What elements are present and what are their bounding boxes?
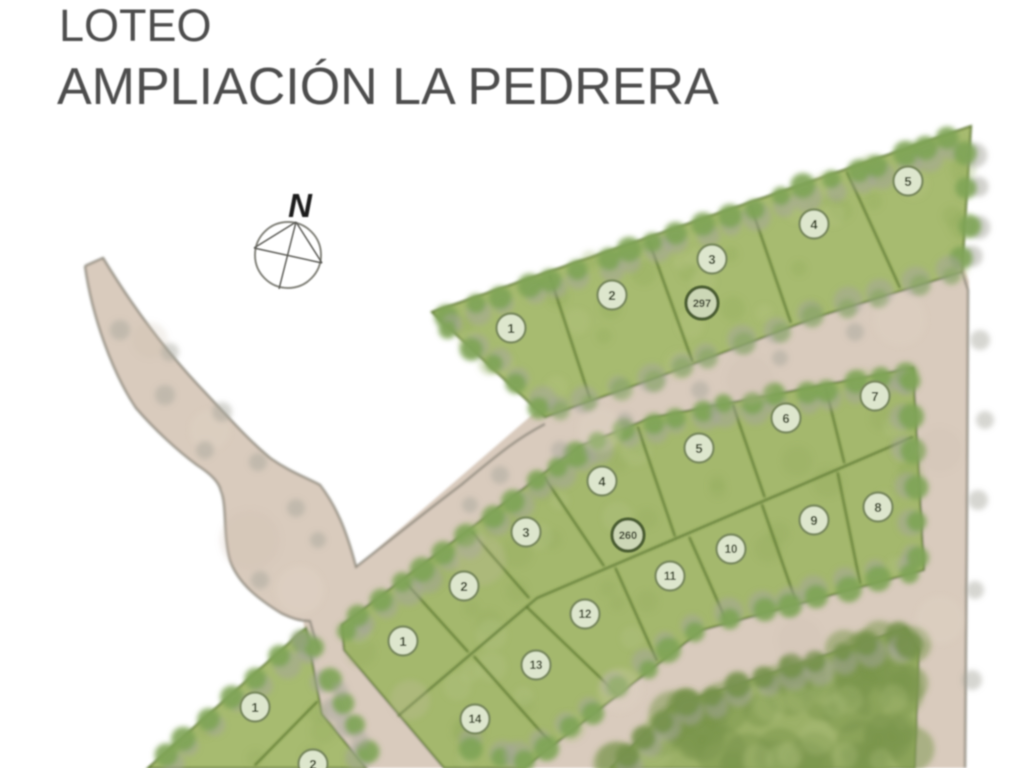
svg-text:3: 3 xyxy=(708,252,715,267)
svg-text:4: 4 xyxy=(810,217,818,232)
svg-text:2: 2 xyxy=(608,288,615,303)
svg-text:13: 13 xyxy=(530,660,543,672)
svg-text:3: 3 xyxy=(522,525,529,540)
svg-text:6: 6 xyxy=(782,411,789,426)
svg-text:297: 297 xyxy=(693,298,711,310)
svg-text:7: 7 xyxy=(871,389,878,404)
svg-text:4: 4 xyxy=(598,474,606,489)
svg-text:14: 14 xyxy=(469,714,482,726)
svg-text:8: 8 xyxy=(874,500,881,515)
svg-text:10: 10 xyxy=(725,544,738,556)
svg-text:AMPLIACIÓN LA PEDRERA: AMPLIACIÓN LA PEDRERA xyxy=(57,58,719,116)
svg-text:LOTEO: LOTEO xyxy=(59,0,212,51)
svg-text:9: 9 xyxy=(810,513,817,528)
svg-text:1: 1 xyxy=(251,700,258,715)
svg-text:5: 5 xyxy=(695,441,702,456)
svg-text:5: 5 xyxy=(904,174,911,189)
svg-text:11: 11 xyxy=(664,571,677,583)
svg-text:12: 12 xyxy=(579,609,592,621)
svg-text:1: 1 xyxy=(399,634,406,649)
svg-text:1: 1 xyxy=(507,321,514,336)
svg-text:N: N xyxy=(288,187,313,224)
svg-text:260: 260 xyxy=(619,530,637,542)
svg-text:2: 2 xyxy=(460,579,467,594)
svg-text:2: 2 xyxy=(309,757,316,768)
